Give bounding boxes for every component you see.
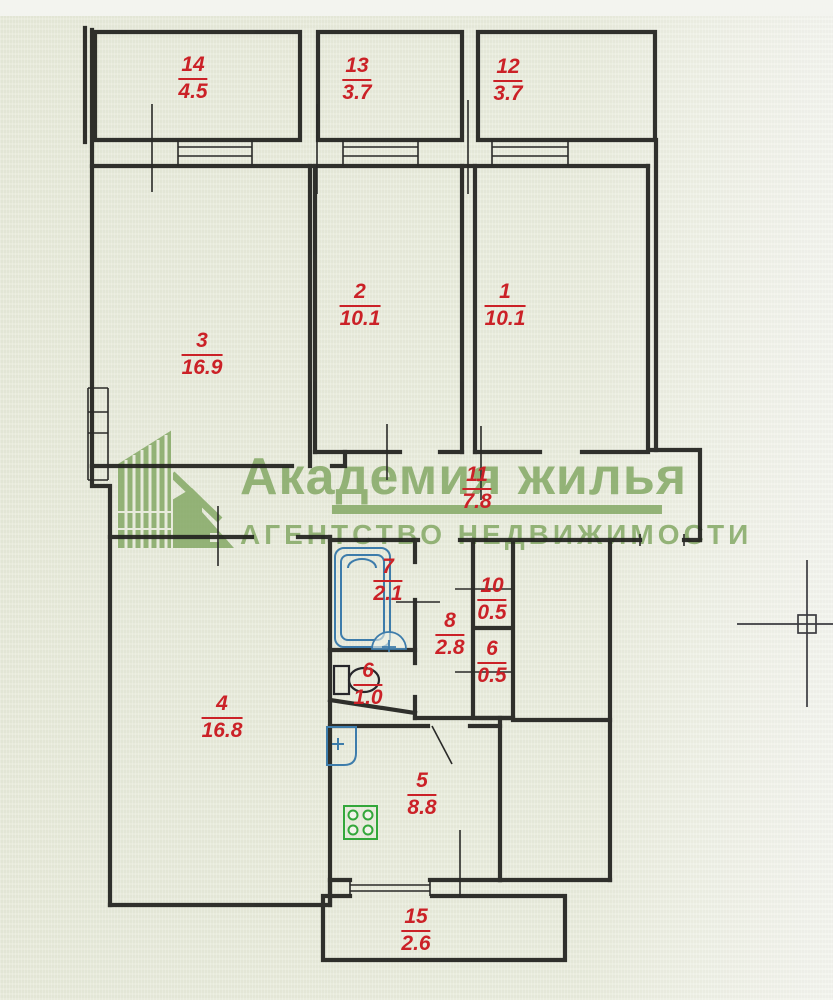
floorplan-drawing: [0, 0, 833, 1000]
room-label-6-closet: 60.5: [477, 638, 506, 687]
room-label-7: 72.1: [373, 556, 402, 605]
room-label-1: 110.1: [485, 281, 526, 330]
room-label-5: 58.8: [407, 770, 436, 819]
room-label-8: 82.8: [435, 610, 464, 659]
room-label-2: 210.1: [340, 281, 381, 330]
walls: [85, 28, 700, 960]
room-label-4: 416.8: [202, 693, 243, 742]
corner-sink-icon: [372, 632, 406, 652]
room-label-6-wc: 61.0: [353, 660, 382, 709]
stove-icon: [344, 806, 377, 839]
room-label-14: 144.5: [178, 54, 207, 103]
room-label-11: 117.8: [462, 464, 491, 513]
room-label-10: 100.5: [477, 575, 506, 624]
room-label-13: 133.7: [342, 55, 371, 104]
floorplan-scan: { "watermark": { "title": "Академия жиль…: [0, 0, 833, 1000]
cad-crosshair-icon: [737, 560, 833, 707]
room-label-12: 123.7: [493, 56, 522, 105]
room-label-3: 316.9: [182, 330, 223, 379]
room-label-15: 152.6: [401, 906, 430, 955]
windows-and-dimension-lines: [88, 100, 684, 897]
